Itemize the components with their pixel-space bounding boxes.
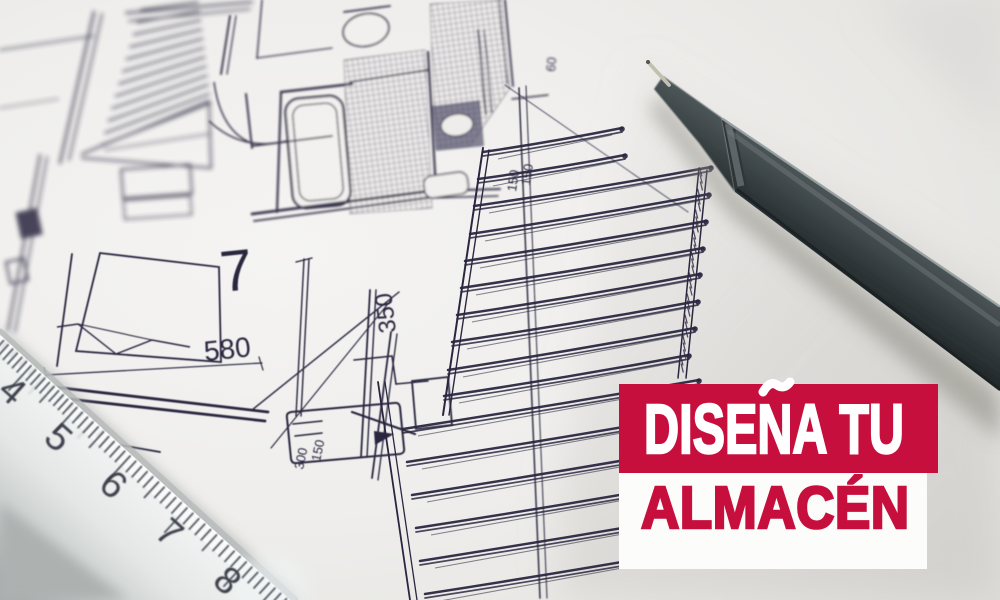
- svg-text:DISENA TU: DISENA TU: [644, 389, 904, 468]
- svg-text:580: 580: [202, 331, 252, 367]
- svg-text:350: 350: [370, 292, 402, 335]
- svg-text:ALMACÉN: ALMACÉN: [641, 474, 910, 540]
- svg-text:60: 60: [543, 57, 559, 73]
- svg-text:7: 7: [217, 237, 256, 305]
